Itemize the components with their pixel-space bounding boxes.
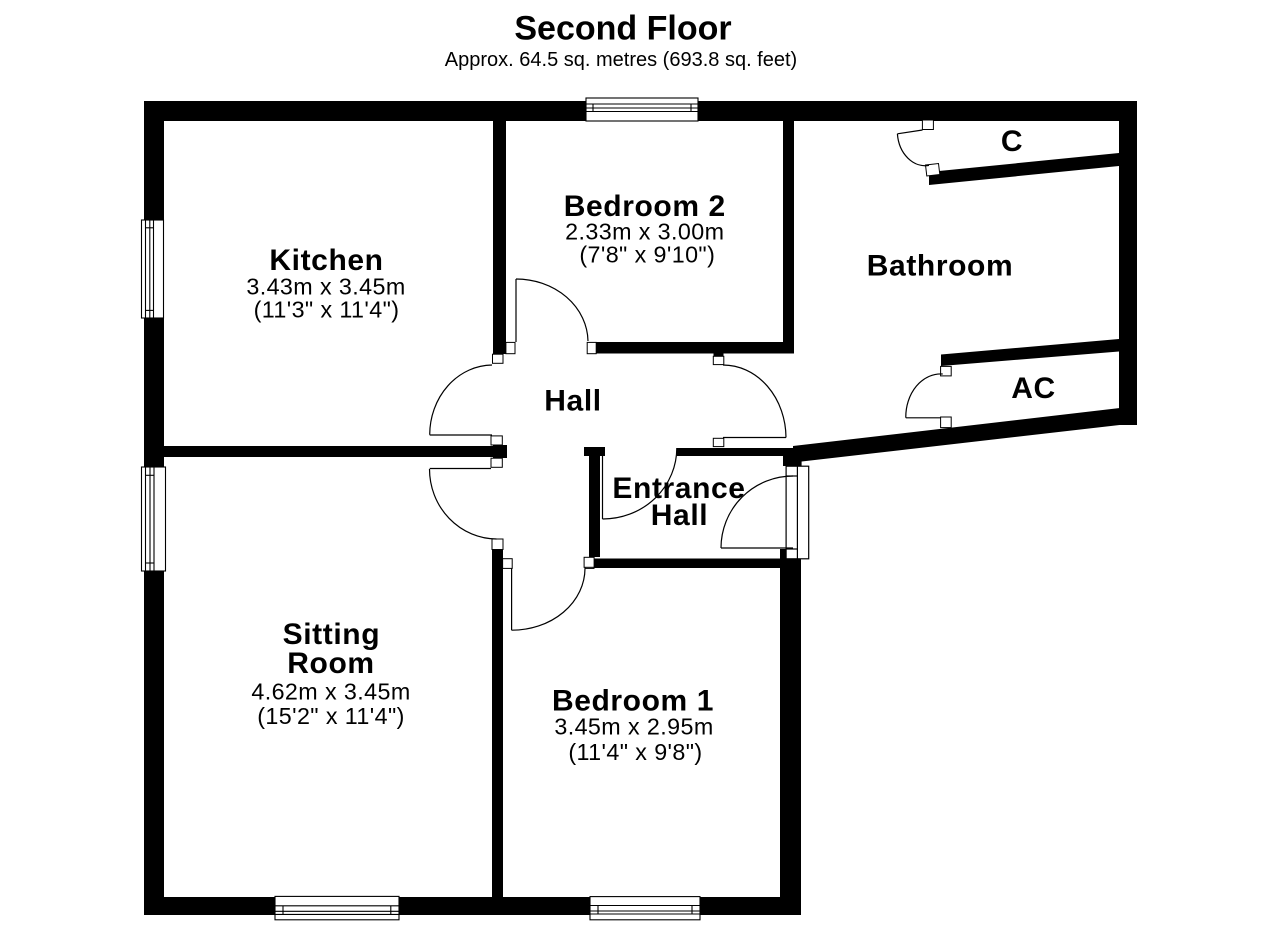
svg-text:AC: AC xyxy=(1011,372,1056,405)
svg-text:Room: Room xyxy=(287,647,374,680)
svg-text:Bedroom 1: Bedroom 1 xyxy=(552,684,714,717)
svg-text:Hall: Hall xyxy=(651,499,708,532)
svg-text:(7'8" x 9'10"): (7'8" x 9'10") xyxy=(579,242,715,268)
svg-text:(11'4" x 9'8"): (11'4" x 9'8") xyxy=(568,739,702,765)
svg-text:(11'3" x 11'4"): (11'3" x 11'4") xyxy=(254,297,400,323)
svg-text:2.33m x 3.00m: 2.33m x 3.00m xyxy=(565,218,724,244)
svg-text:Bathroom: Bathroom xyxy=(867,250,1013,283)
svg-text:C: C xyxy=(1001,125,1023,158)
svg-text:Kitchen: Kitchen xyxy=(269,244,383,277)
svg-text:3.45m x 2.95m: 3.45m x 2.95m xyxy=(554,714,713,740)
svg-text:4.62m x 3.45m: 4.62m x 3.45m xyxy=(251,679,410,705)
svg-text:Second Floor: Second Floor xyxy=(514,9,731,47)
svg-text:3.43m x 3.45m: 3.43m x 3.45m xyxy=(246,273,405,299)
svg-text:(15'2" x 11'4"): (15'2" x 11'4") xyxy=(257,703,405,729)
svg-text:Approx. 64.5 sq. metres (693.8: Approx. 64.5 sq. metres (693.8 sq. feet) xyxy=(445,49,797,71)
svg-text:Hall: Hall xyxy=(544,385,601,418)
